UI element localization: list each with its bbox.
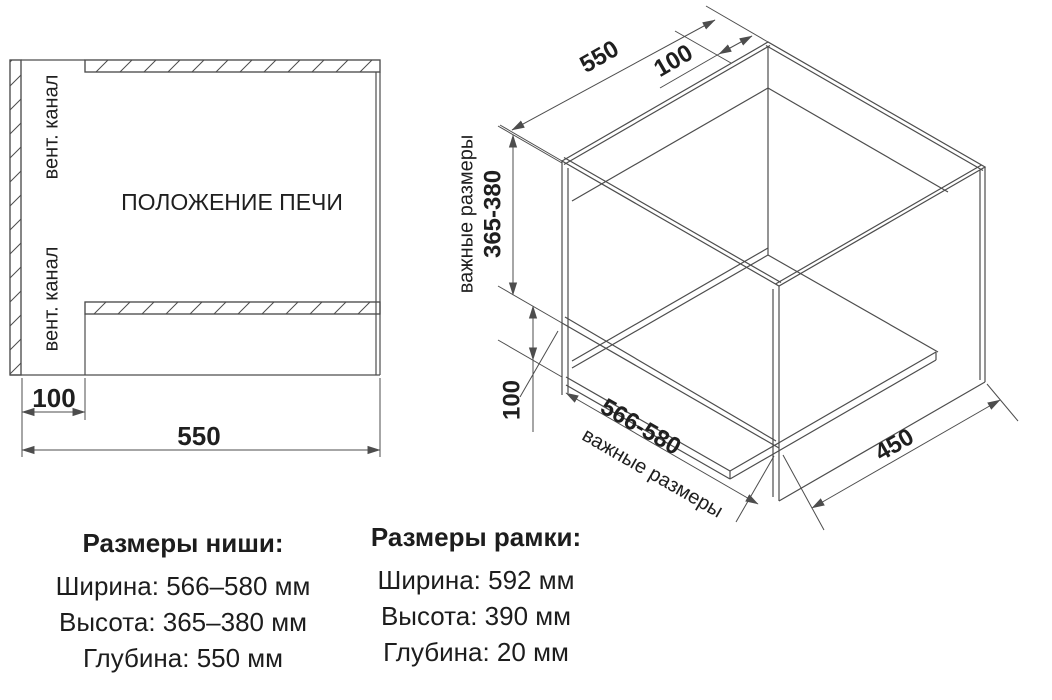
dimension-lines-iso — [498, 6, 1018, 530]
frame-dimensions-spec: Размеры рамки: Ширина: 592 мм Высота: 39… — [326, 522, 626, 670]
shelf-hatch-top — [85, 60, 380, 72]
dim-label-iso-back-vent-100: 100 — [649, 39, 697, 82]
niche-spec-width: Ширина: 566–580 мм — [33, 568, 333, 604]
niche-spec-height: Высота: 365–380 мм — [33, 604, 333, 640]
niche-spec-title: Размеры ниши: — [33, 528, 333, 559]
dim-label-iso-bottom-vent-100: 100 — [498, 380, 525, 420]
oven-position-label: ПОЛОЖЕНИЕ ПЕЧИ — [121, 189, 343, 215]
frame-spec-width: Ширина: 592 мм — [326, 562, 626, 598]
cabinet-top-face — [562, 42, 985, 286]
front-view-diagram: вент. канал вент. канал ПОЛОЖЕНИЕ ПЕЧИ 1… — [10, 60, 380, 457]
shelf-hatch-middle — [85, 302, 380, 314]
frame-spec-depth: Глубина: 20 мм — [326, 634, 626, 670]
frame-spec-title: Размеры рамки: — [326, 522, 626, 553]
frame-spec-height: Высота: 390 мм — [326, 598, 626, 634]
dim-label-iso-shelf-depth-450: 450 — [870, 423, 918, 466]
dim-label-gap-100: 100 — [32, 383, 75, 413]
iso-view-diagram: 550 100 важные размеры 365-380 100 566-5… — [455, 6, 1018, 530]
niche-dimensions-spec: Размеры ниши: Ширина: 566–580 мм Высота:… — [33, 528, 333, 676]
dim-label-iso-depth-550: 550 — [575, 35, 623, 78]
important-dimensions-label-left: важные размеры — [455, 135, 477, 294]
wall-hatch-left — [10, 60, 21, 375]
installation-diagram-page: вент. канал вент. канал ПОЛОЖЕНИЕ ПЕЧИ 1… — [0, 0, 1052, 700]
vent-channel-label-top: вент. канал — [40, 75, 62, 180]
niche-spec-depth: Глубина: 550 мм — [33, 640, 333, 676]
dim-label-iso-height-365-380: 365-380 — [479, 170, 506, 258]
niche-interior — [562, 46, 948, 448]
dim-label-depth-550: 550 — [177, 421, 220, 451]
vent-channel-label-bottom: вент. канал — [40, 247, 62, 352]
niche-outline — [10, 60, 380, 375]
